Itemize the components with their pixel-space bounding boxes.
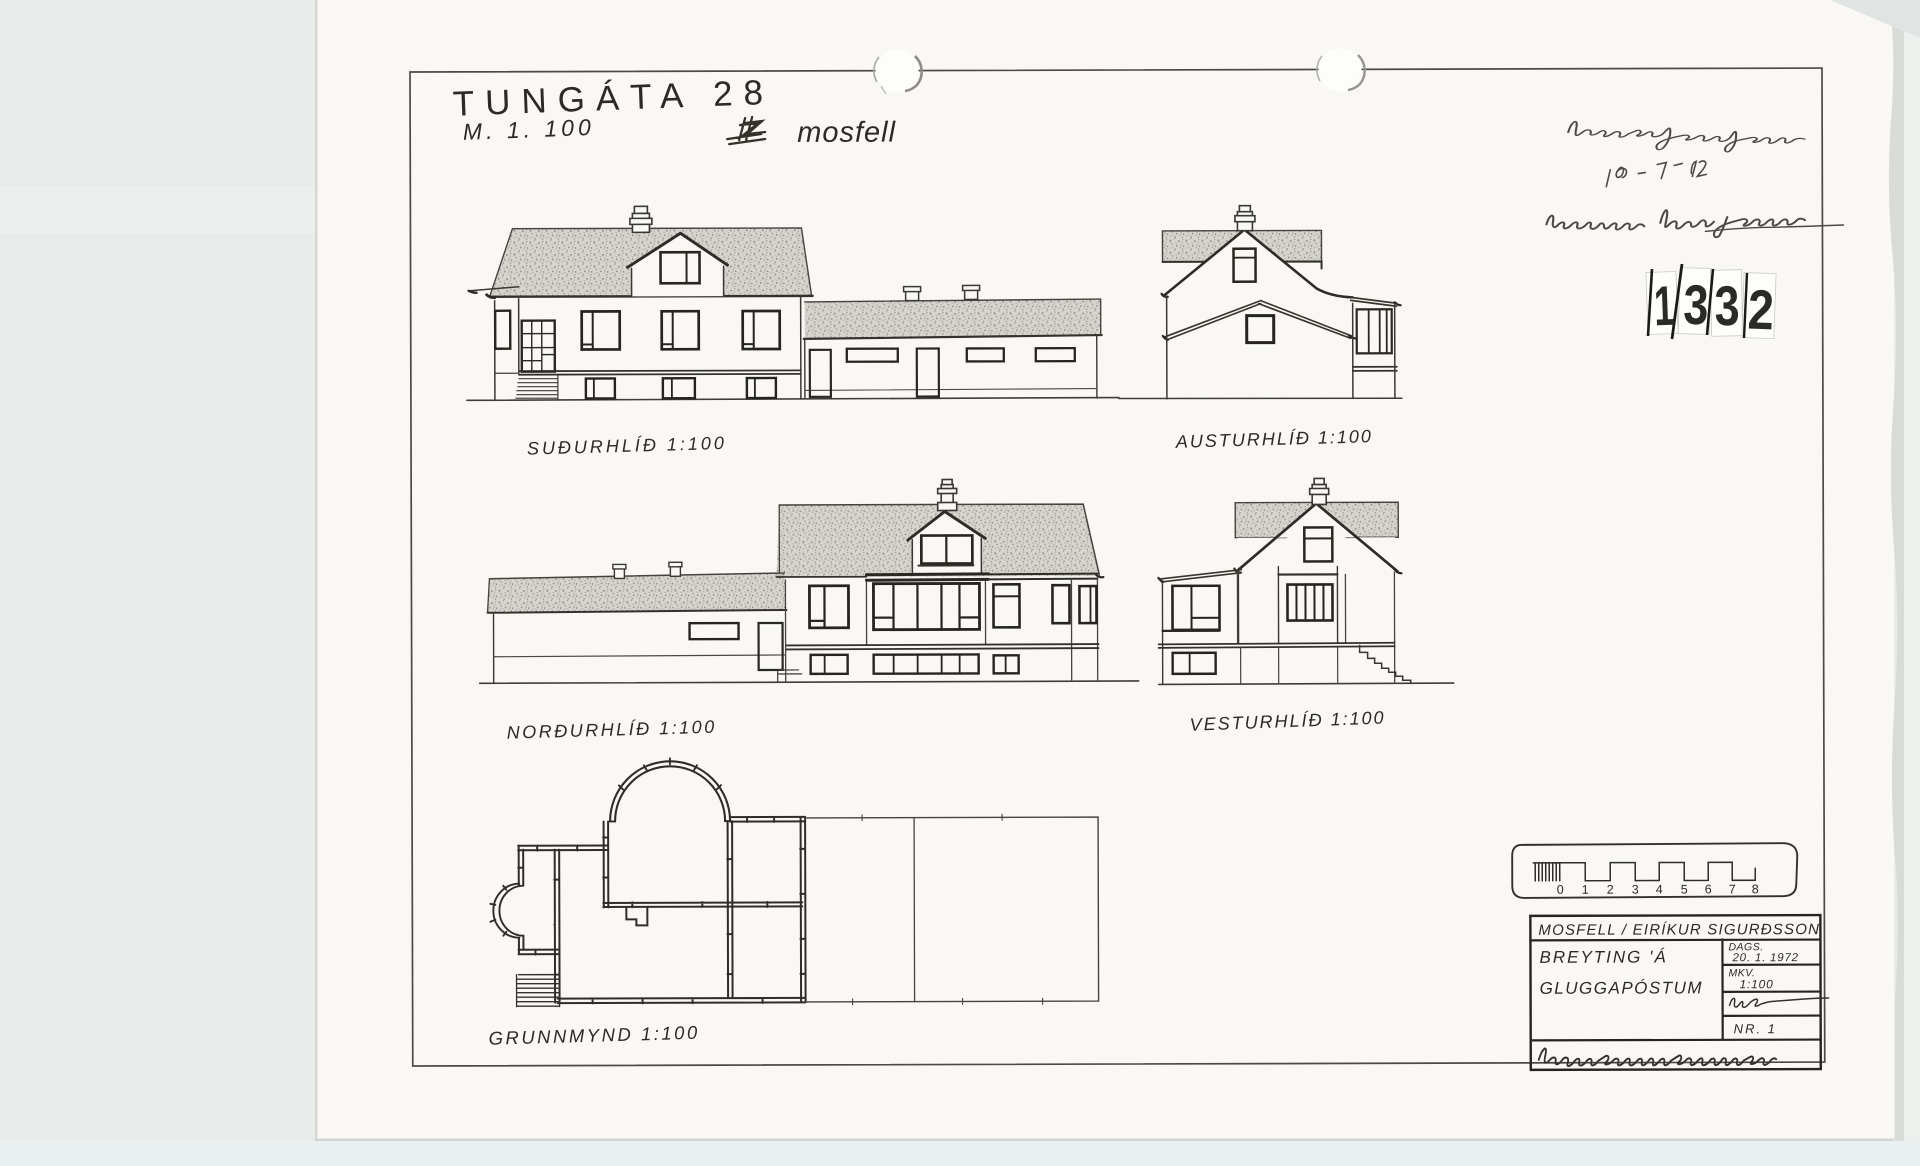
svg-text:1:100: 1:100 bbox=[1740, 977, 1774, 991]
svg-text:1: 1 bbox=[1653, 274, 1675, 338]
svg-text:3: 3 bbox=[1632, 883, 1639, 897]
svg-text:2: 2 bbox=[1607, 883, 1614, 897]
svg-text:8: 8 bbox=[1752, 882, 1759, 896]
svg-text:7: 7 bbox=[1729, 882, 1736, 896]
svg-text:20. 1. 1972: 20. 1. 1972 bbox=[1731, 952, 1798, 964]
svg-text:1: 1 bbox=[1582, 883, 1589, 897]
svg-text:2: 2 bbox=[1747, 278, 1775, 342]
svg-text:3: 3 bbox=[1714, 274, 1740, 337]
svg-text:GLUGGAPÓSTUM: GLUGGAPÓSTUM bbox=[1540, 978, 1704, 997]
svg-text:5: 5 bbox=[1681, 882, 1688, 896]
svg-text:MOSFELL / EIRÍKUR SIGURÐSSON: MOSFELL / EIRÍKUR SIGURÐSSON bbox=[1538, 921, 1820, 939]
svg-text:3: 3 bbox=[1683, 273, 1710, 337]
svg-text:NR. 1: NR. 1 bbox=[1734, 1021, 1777, 1036]
svg-text:4: 4 bbox=[1656, 883, 1663, 897]
svg-text:M. 1. 100: M. 1. 100 bbox=[462, 114, 595, 145]
svg-text:0: 0 bbox=[1557, 883, 1564, 897]
svg-text:BREYTING 'Á: BREYTING 'Á bbox=[1539, 947, 1667, 966]
svg-text:mosfell: mosfell bbox=[797, 117, 897, 149]
svg-text:6: 6 bbox=[1705, 882, 1712, 896]
